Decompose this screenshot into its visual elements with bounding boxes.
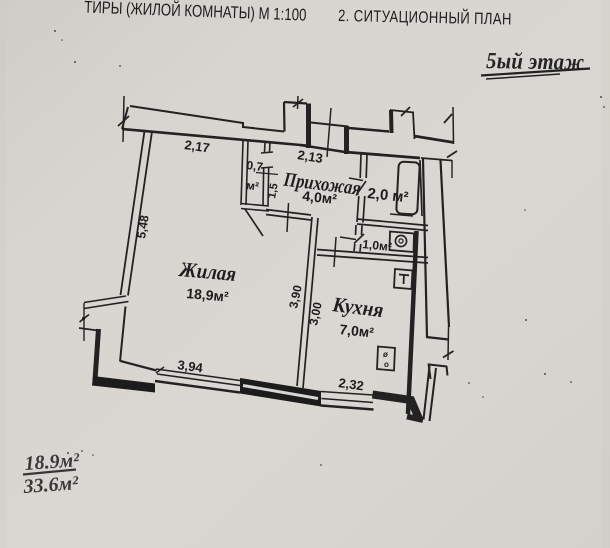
svg-text:o: o xyxy=(384,360,389,369)
svg-text:м²: м² xyxy=(246,180,260,193)
svg-text:0,7: 0,7 xyxy=(246,158,265,174)
svg-text:ø: ø xyxy=(383,350,388,359)
svg-text:33.6м²: 33.6м² xyxy=(22,472,80,498)
